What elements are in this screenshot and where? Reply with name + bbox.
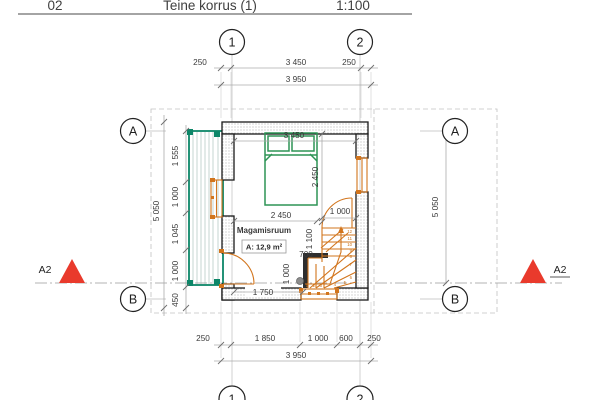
step-12: 12 (347, 229, 352, 234)
dim-left-3: 1 045 (171, 223, 180, 244)
dims-top: 250 3 450 250 3 950 (193, 58, 378, 118)
section-triangle-right (520, 259, 546, 283)
title-block: 02 Teine korrus (1) 1:100 (18, 0, 412, 14)
balcony-deck (187, 129, 223, 286)
dim-stair-lower: 1 000 (282, 263, 291, 284)
wall-left-upper (222, 134, 234, 180)
sheet-scale: 1:100 (336, 0, 370, 13)
dims-interior: 3 450 2 450 2 450 1 000 1 100 700 1 000 … (231, 131, 359, 297)
grid-bubble-1-top-label: 1 (229, 36, 236, 50)
wall-right-upper (356, 134, 368, 158)
room-name: Magamisruum (237, 226, 291, 235)
dim-stair-upper: 1 100 (305, 228, 314, 249)
dim-room-width: 3 450 (284, 131, 305, 140)
dim-right-total: 5 050 (431, 196, 440, 217)
balcony-post-tl (187, 129, 193, 135)
dim-bottom-3: 1 000 (308, 334, 329, 343)
dim-top-right: 250 (342, 58, 356, 67)
wall-right-lower (356, 192, 368, 288)
dim-top-total: 3 950 (286, 75, 307, 84)
section-label-left: A2 (39, 264, 52, 276)
dim-bottom-5: 250 (367, 334, 381, 343)
bed-outline (265, 133, 317, 205)
grid-lines (35, 55, 562, 385)
dim-bottom-1: 250 (196, 334, 210, 343)
window-left (210, 178, 222, 219)
grid-bubble-b-right-label: B (451, 293, 459, 307)
dim-bottom-4: 600 (339, 334, 353, 343)
step-11: 11 (348, 236, 353, 241)
door-left-balcony (219, 249, 254, 288)
sheet-number: 02 (47, 0, 62, 13)
step-6: 6 (350, 275, 353, 280)
dim-bottom-2: 1 850 (255, 334, 276, 343)
dim-bed-length: 2 450 (311, 166, 320, 187)
dim-left-4: 1 000 (171, 260, 180, 281)
wall-bottom-right (337, 288, 368, 300)
bed (265, 133, 317, 205)
dim-top-left: 250 (193, 58, 207, 67)
dim-left-2: 1 000 (171, 186, 180, 207)
deck-boards (193, 132, 218, 284)
section-label-right: A2 (554, 264, 567, 276)
grid-bubble-b-left-label: B (129, 293, 137, 307)
dim-wall-inner: 1 750 (253, 288, 274, 297)
grid-bubble-a-right-label: A (451, 125, 460, 139)
dim-door-width: 1 000 (330, 207, 351, 216)
room-area: A: 12,9 m² (246, 243, 283, 252)
section-triangle-left (59, 259, 85, 283)
window-right (356, 156, 367, 194)
dim-left-5: 450 (171, 293, 180, 307)
grid-bubble-2-top-label: 2 (357, 36, 364, 50)
step-10: 10 (347, 242, 352, 247)
dims-left: 1 555 1 000 1 045 1 000 450 5 050 (152, 115, 189, 316)
sheet-title: Teine korrus (1) (163, 0, 257, 13)
floor-plan-sheet: 02 Teine korrus (1) 1:100 (0, 0, 600, 400)
dims-right: 5 050 (431, 128, 449, 286)
dim-left-1: 1 555 (171, 145, 180, 166)
dim-left-total: 5 050 (152, 200, 161, 221)
wall-left-mid (222, 216, 234, 253)
dim-top-mid: 3 450 (286, 58, 307, 67)
dim-bed-width: 2 450 (271, 211, 292, 220)
room-label: Magamisruum A: 12,9 m² (237, 226, 291, 253)
balcony-post-tr (214, 131, 220, 137)
dim-bottom-total: 3 950 (286, 351, 307, 360)
grid-bubble-2-bottom-label: 2 (357, 393, 364, 400)
grid-bubble-1-bottom-label: 1 (229, 393, 236, 400)
newel-post (297, 278, 304, 285)
grid-bubble-a-left-label: A (129, 125, 138, 139)
dim-landing: 700 (299, 250, 313, 259)
dims-bottom: 250 1 850 1 000 600 250 3 950 (196, 302, 381, 364)
